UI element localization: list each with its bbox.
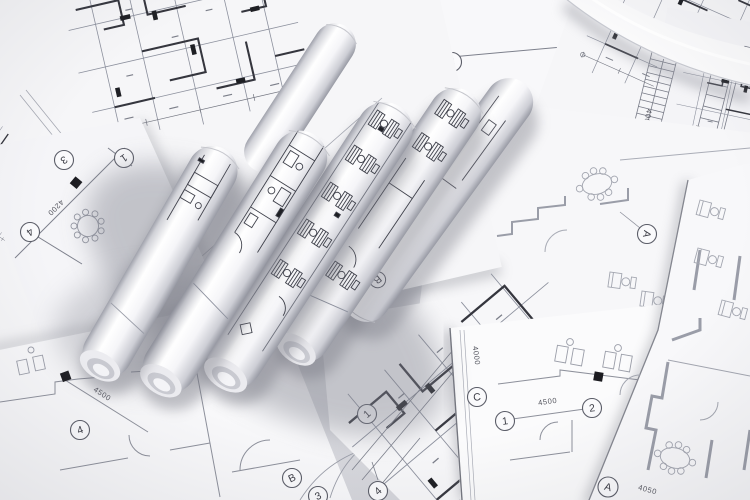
vignette — [0, 0, 750, 500]
blueprint-photo: 4500 3 4 4000 6000 A — [0, 0, 750, 500]
blueprint-photo-svg: 4500 3 4 4000 6000 A — [0, 0, 750, 500]
